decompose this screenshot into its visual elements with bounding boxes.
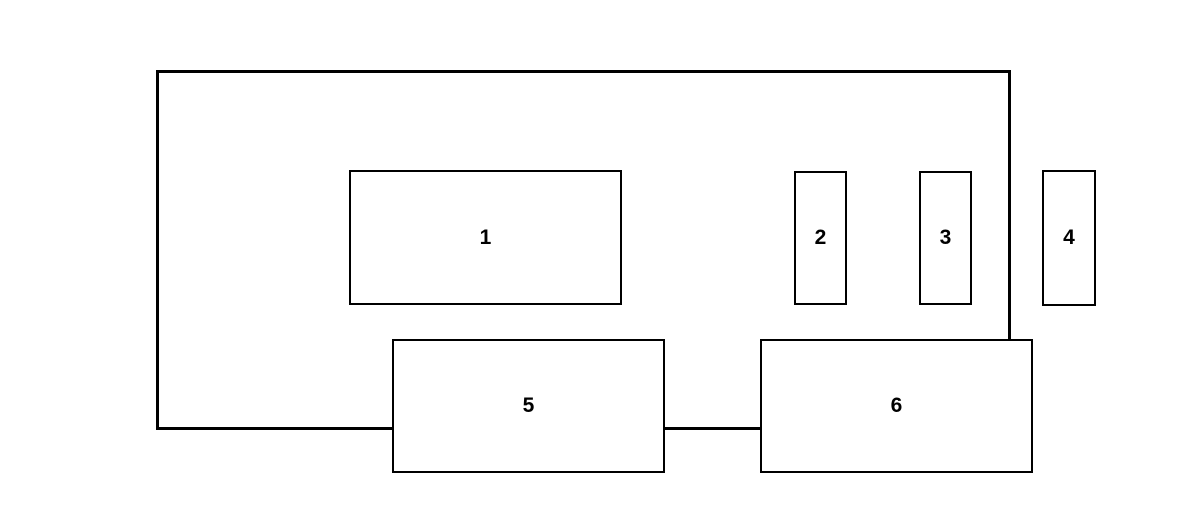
box-6-label: 6 [891, 394, 903, 418]
box-4-label: 4 [1063, 226, 1075, 250]
box-3: 3 [919, 171, 972, 305]
box-5: 5 [392, 339, 665, 473]
box-6: 6 [760, 339, 1033, 473]
box-1-label: 1 [480, 226, 492, 250]
box-5-label: 5 [523, 394, 535, 418]
box-3-label: 3 [940, 226, 952, 250]
diagram-canvas: 1 2 3 4 5 6 [0, 0, 1200, 506]
outer-boundary-rect: 1 2 3 4 5 6 [156, 70, 1011, 430]
box-1: 1 [349, 170, 622, 305]
box-2: 2 [794, 171, 847, 305]
box-4: 4 [1042, 170, 1096, 306]
box-2-label: 2 [815, 226, 827, 250]
